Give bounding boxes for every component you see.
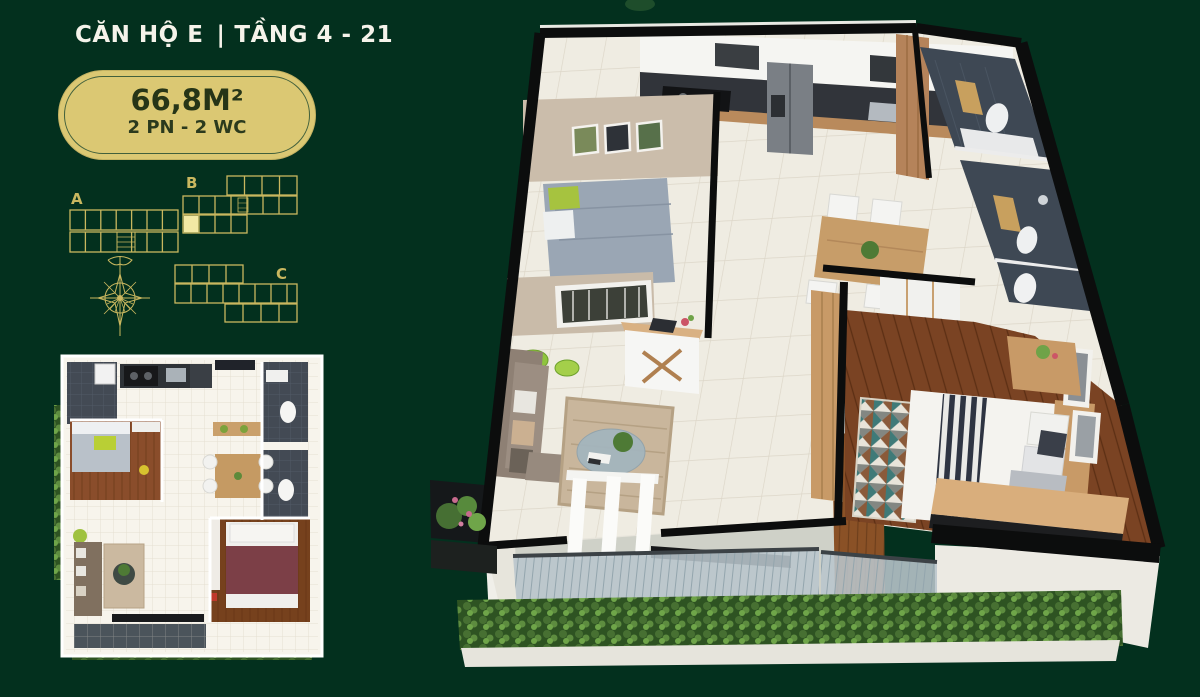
rooftop-plant [625, 0, 655, 11]
floor-plan-2d-thumbnail [48, 350, 328, 670]
apartment-name: CĂN HỘ E [75, 22, 203, 48]
area-badge: 66,8M² 2 PN - 2 WC [58, 70, 316, 160]
block-b-label: B [186, 174, 197, 192]
area-value: 66,8M² [59, 85, 315, 117]
block-c-label: C [276, 265, 287, 283]
plan-body [62, 356, 322, 656]
master-dresser [1007, 336, 1081, 396]
highlighted-unit [184, 216, 199, 233]
site-block-a [70, 210, 178, 252]
block-a-label: A [71, 190, 83, 208]
coffee-table [577, 429, 645, 475]
room-config: 2 PN - 2 WC [59, 117, 315, 140]
page-title: CĂN HỘ E|TẦNG 4 - 21 [75, 22, 393, 48]
compass-rose-icon [84, 248, 156, 340]
title-separator: | [216, 22, 225, 48]
brochure-page: CĂN HỘ E|TẦNG 4 - 21 66,8M² 2 PN - 2 WC [0, 0, 1200, 697]
site-block-b [183, 176, 297, 233]
floor-range: TẦNG 4 - 21 [234, 22, 393, 48]
floor-plan-3d-render [415, 0, 1200, 697]
planter-greenery [457, 590, 1123, 650]
